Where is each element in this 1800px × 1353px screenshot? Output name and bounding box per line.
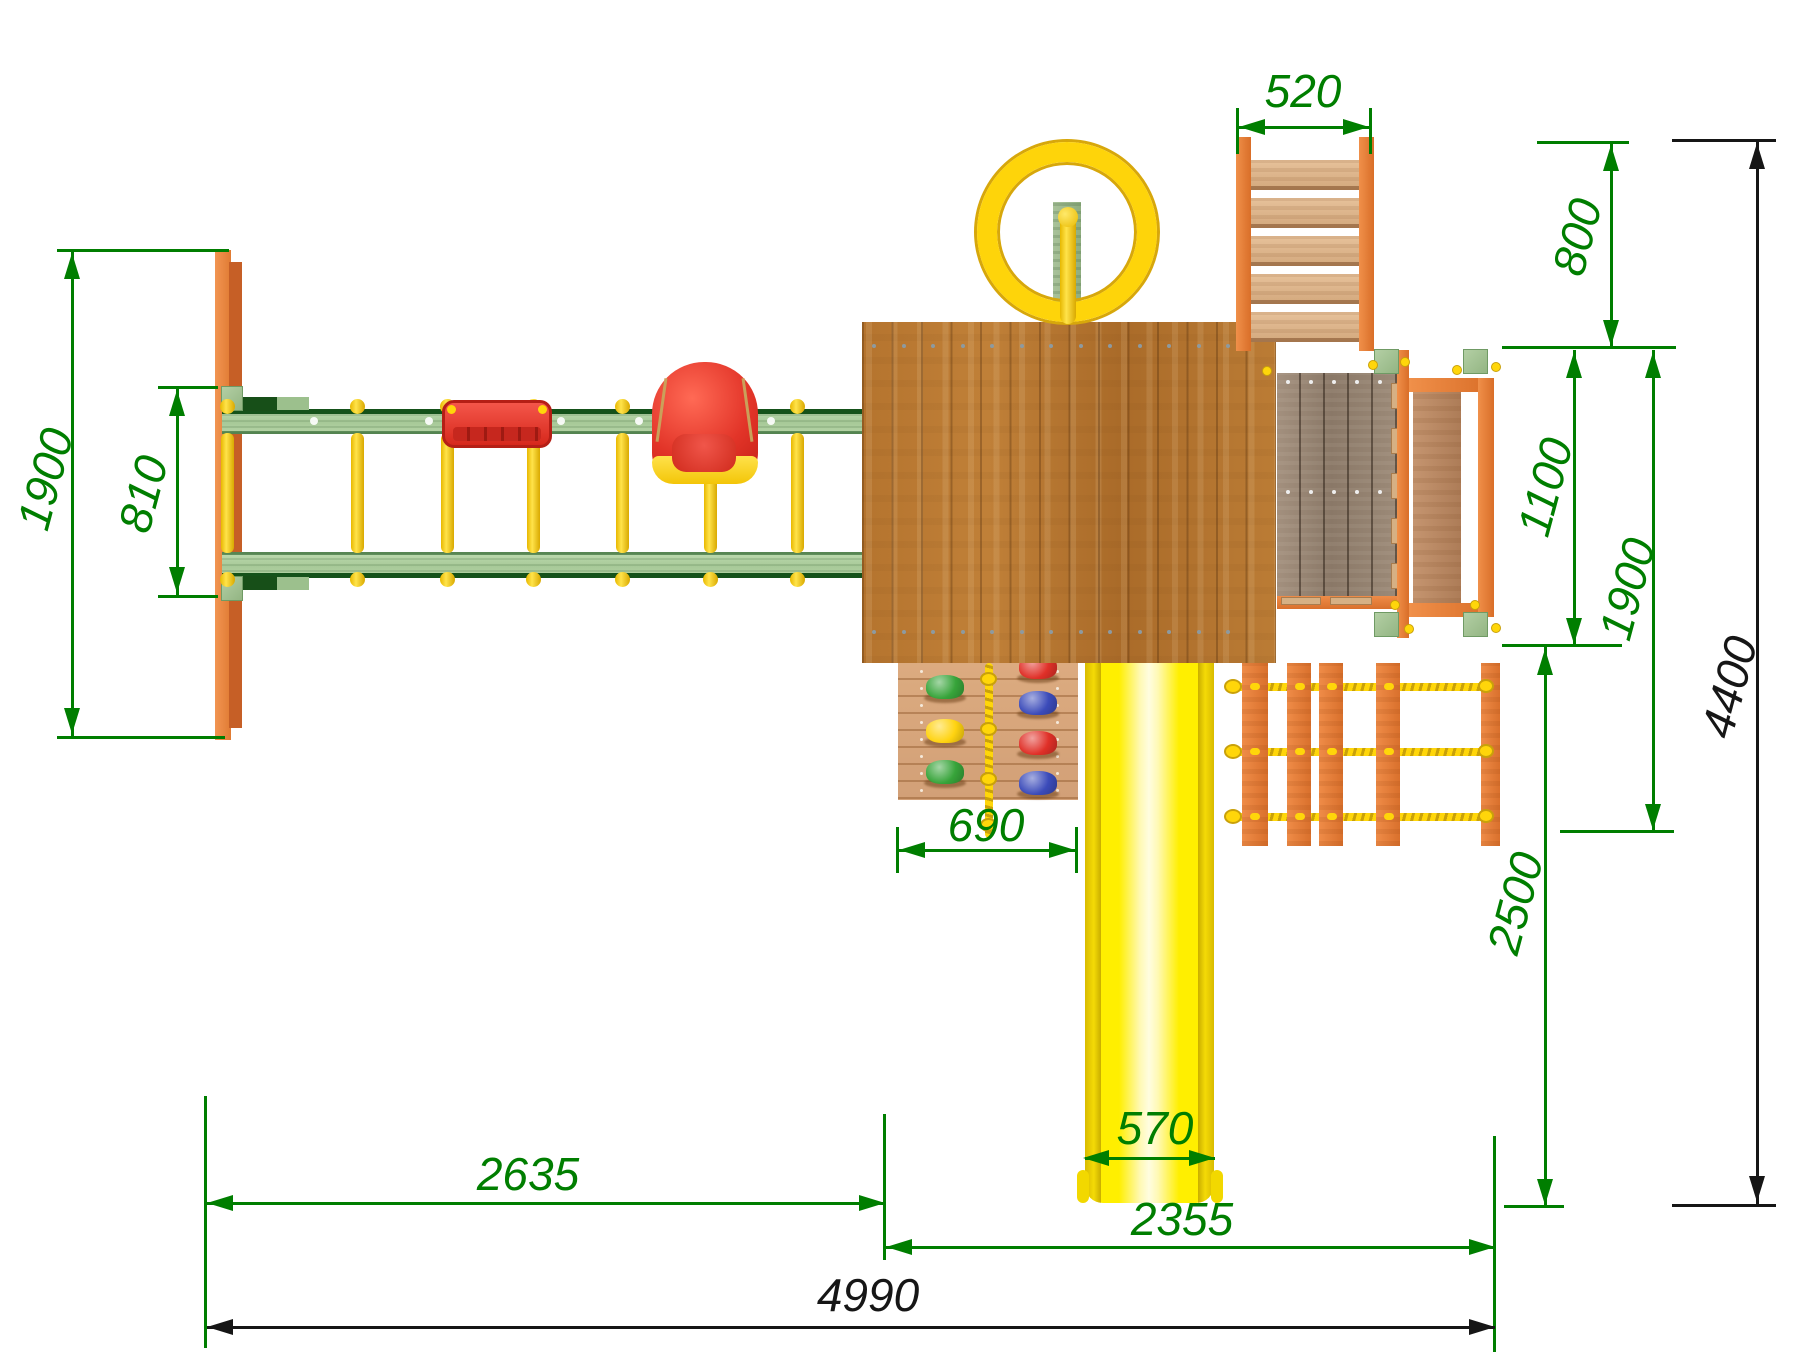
screw-icon: [920, 789, 923, 792]
rope-ladder-rope: [1233, 683, 1493, 691]
screw-icon: [1378, 490, 1382, 494]
dim-tick: [1560, 830, 1674, 833]
rope-over-slat: [1295, 683, 1305, 690]
dim-line: [886, 1246, 1495, 1249]
dim-arrow: [1645, 804, 1661, 830]
swing-seat-flat: [442, 400, 552, 448]
dim-arrow: [64, 708, 80, 734]
bolt-icon: [1262, 366, 1272, 376]
screw-icon: [961, 344, 965, 348]
dim-tick: [1672, 1204, 1776, 1207]
screw-icon: [1309, 380, 1313, 384]
dim-label-570: 570: [1055, 1101, 1255, 1155]
dim-label-4990: 4990: [768, 1268, 968, 1322]
rope-over-slat: [1327, 683, 1337, 690]
bolt-icon: [447, 405, 456, 414]
screw-icon: [1286, 380, 1290, 384]
screw-icon: [1079, 344, 1083, 348]
monkeybar-rung-cap: [703, 572, 718, 587]
rope-knot: [980, 672, 997, 686]
screw-icon: [1332, 380, 1336, 384]
rope-over-slat: [1295, 748, 1305, 755]
rope-over-slat: [1384, 813, 1394, 820]
dim-arrow: [1749, 143, 1765, 169]
rope-knot: [1478, 679, 1494, 693]
rope-over-slat: [1295, 813, 1305, 820]
screw-icon: [1056, 772, 1059, 775]
monkeybar-rung-cap: [615, 399, 630, 414]
rope-over-slat: [1327, 813, 1337, 820]
screw-icon: [1079, 630, 1083, 634]
deck-corner-block: [1463, 612, 1488, 637]
dim-arrow: [886, 1239, 912, 1255]
dim-arrow: [64, 253, 80, 279]
climbing-hold-blue: [1019, 771, 1057, 795]
monkeybar-rung-cap: [220, 572, 235, 587]
monkeybar-rung: [527, 433, 540, 553]
screw-icon: [990, 630, 994, 634]
bolt-icon: [635, 417, 643, 425]
swing-seat-baby-inner: [672, 434, 736, 472]
rope-ladder-rope: [1233, 813, 1493, 821]
monkeybar-rung: [351, 433, 364, 553]
balcony-right-frame: [1478, 378, 1494, 617]
dim-arrow: [169, 567, 185, 593]
screw-icon: [872, 344, 876, 348]
dim-label-520: 520: [1203, 64, 1403, 118]
rope-ladder-rope: [1233, 748, 1493, 756]
screw-icon: [1167, 344, 1171, 348]
screw-icon: [1020, 630, 1024, 634]
screw-icon: [920, 738, 923, 741]
balcony-plank: [1413, 392, 1461, 603]
top-ladder-rung: [1251, 312, 1359, 342]
dim-tick: [57, 249, 229, 252]
rope-knot: [1478, 744, 1494, 758]
bolt-icon: [557, 417, 565, 425]
dim-arrow: [1469, 1319, 1495, 1335]
screw-icon: [1226, 630, 1230, 634]
bolt-icon: [1470, 600, 1480, 610]
screw-icon: [920, 687, 923, 690]
monkeybar-rung-cap: [615, 572, 630, 587]
screw-icon: [1020, 344, 1024, 348]
screw-icon: [920, 704, 923, 707]
screw-icon: [902, 630, 906, 634]
bolt-icon: [1452, 365, 1462, 375]
bolt-icon: [310, 417, 318, 425]
monkeybar-beam-bottom: [222, 552, 865, 578]
dim-arrow: [1566, 352, 1582, 378]
bolt-icon: [538, 405, 547, 414]
bolt-icon: [1491, 362, 1501, 372]
screw-icon: [1309, 490, 1313, 494]
climbing-hold-yellow: [926, 719, 964, 743]
beam-bracket-dark: [243, 397, 277, 411]
dim-label-2635: 2635: [428, 1147, 628, 1201]
rope-over-slat: [1250, 683, 1260, 690]
dim-tick: [158, 386, 218, 389]
screw-icon: [961, 630, 965, 634]
top-ladder-rung: [1251, 160, 1359, 190]
dim-tick: [1502, 346, 1676, 349]
screw-icon: [1226, 344, 1230, 348]
dim-arrow: [1749, 1176, 1765, 1202]
rope-knot: [1224, 809, 1242, 824]
bolt-icon: [425, 417, 433, 425]
bolt-icon: [767, 417, 775, 425]
balcony-left-bar: [1397, 350, 1409, 638]
rope-over-slat: [1384, 748, 1394, 755]
dim-tick: [158, 595, 218, 598]
screw-icon: [1332, 490, 1336, 494]
monkeybar-rung-cap: [440, 572, 455, 587]
screw-icon: [1197, 630, 1201, 634]
ring-pole: [1060, 216, 1076, 324]
bolt-icon: [1491, 623, 1501, 633]
top-ladder-rung: [1251, 274, 1359, 304]
rope-over-slat: [1250, 748, 1260, 755]
monkeybar-rung-cap: [350, 572, 365, 587]
screw-icon: [920, 755, 923, 758]
screw-icon: [1138, 344, 1142, 348]
monkeybar-rung: [791, 433, 804, 553]
screw-icon: [1049, 630, 1053, 634]
deck-corner-block: [1374, 612, 1399, 637]
screw-icon: [1108, 344, 1112, 348]
monkeybar-rung-cap: [790, 572, 805, 587]
dim-arrow: [207, 1319, 233, 1335]
climbing-hold-green: [926, 760, 964, 784]
deck-corner-block: [1374, 349, 1399, 374]
monkeybar-rung: [221, 433, 234, 553]
beam-bracket-light: [277, 397, 309, 410]
deck-edge-tab: [1330, 597, 1372, 605]
dim-label-2355: 2355: [1082, 1192, 1282, 1246]
rope-over-slat: [1327, 748, 1337, 755]
monkeybar-rung-cap: [790, 399, 805, 414]
dim-arrow: [1239, 119, 1265, 135]
monkeybar-rung-cap: [526, 572, 541, 587]
monkeybar-rung: [441, 433, 454, 553]
screw-icon: [1355, 490, 1359, 494]
top-ladder-rail-left: [1236, 137, 1251, 351]
beam-bracket-light: [277, 577, 309, 590]
dim-tick: [57, 736, 225, 739]
bolt-icon: [1400, 357, 1410, 367]
ring-pole-cap: [1058, 207, 1078, 227]
climbing-hold-blue: [1019, 691, 1057, 715]
screw-icon: [1049, 344, 1053, 348]
top-ladder-rung: [1251, 236, 1359, 266]
screw-icon: [920, 670, 923, 673]
dim-line: [1544, 647, 1547, 1207]
dim-arrow: [1537, 649, 1553, 675]
top-ladder-rung: [1251, 198, 1359, 228]
screw-icon: [872, 630, 876, 634]
dim-line: [207, 1326, 1495, 1329]
screw-icon: [920, 772, 923, 775]
drawing-canvas: 520 800 1100 1900 2500: [0, 0, 1800, 1353]
screw-icon: [1355, 380, 1359, 384]
dim-arrow: [859, 1195, 885, 1211]
bolt-icon: [1368, 360, 1378, 370]
dim-arrow: [1537, 1179, 1553, 1205]
dim-arrow: [1645, 352, 1661, 378]
top-ladder-rail-right: [1359, 137, 1374, 351]
rope-over-slat: [1250, 813, 1260, 820]
rope-knot: [1224, 679, 1242, 694]
screw-icon: [1138, 630, 1142, 634]
dim-arrow: [1566, 618, 1582, 644]
bolt-icon: [1390, 600, 1400, 610]
monkeybar-rung: [616, 433, 629, 553]
rope-knot: [980, 722, 997, 736]
monkeybar-rung-cap: [220, 399, 235, 414]
screw-icon: [1108, 630, 1112, 634]
deck-edge-tab: [1281, 597, 1321, 605]
screw-icon: [1167, 630, 1171, 634]
screw-icon: [1197, 344, 1201, 348]
rope-knot: [980, 772, 997, 786]
screw-icon: [920, 721, 923, 724]
swing-seat-flat-slats: [453, 427, 541, 441]
dim-line: [71, 251, 74, 738]
monkeybar-rung-cap: [350, 399, 365, 414]
dim-arrow: [207, 1195, 233, 1211]
screw-icon: [990, 344, 994, 348]
dim-label-690: 690: [886, 798, 1086, 852]
dim-tick: [1504, 1205, 1564, 1208]
screw-icon: [931, 630, 935, 634]
climbing-hold-red: [1019, 731, 1057, 755]
rope-over-slat: [1384, 683, 1394, 690]
dim-arrow: [1469, 1239, 1495, 1255]
tower-roof: [862, 322, 1276, 663]
dim-arrow: [1343, 119, 1369, 135]
screw-icon: [1286, 490, 1290, 494]
dim-line: [207, 1202, 885, 1205]
screw-icon: [1056, 721, 1059, 724]
dim-arrow: [1603, 320, 1619, 346]
climbing-hold-green: [926, 675, 964, 699]
dim-ext: [204, 1096, 207, 1348]
screw-icon: [931, 344, 935, 348]
beam-bracket-dark: [243, 576, 277, 590]
screw-icon: [902, 344, 906, 348]
bolt-icon: [1404, 624, 1414, 634]
rope-knot: [1224, 744, 1242, 759]
dim-tick: [1672, 139, 1776, 142]
deck-corner-block: [1463, 349, 1488, 374]
rope-knot: [1478, 809, 1494, 823]
screw-icon: [1378, 380, 1382, 384]
screw-icon: [1056, 687, 1059, 690]
